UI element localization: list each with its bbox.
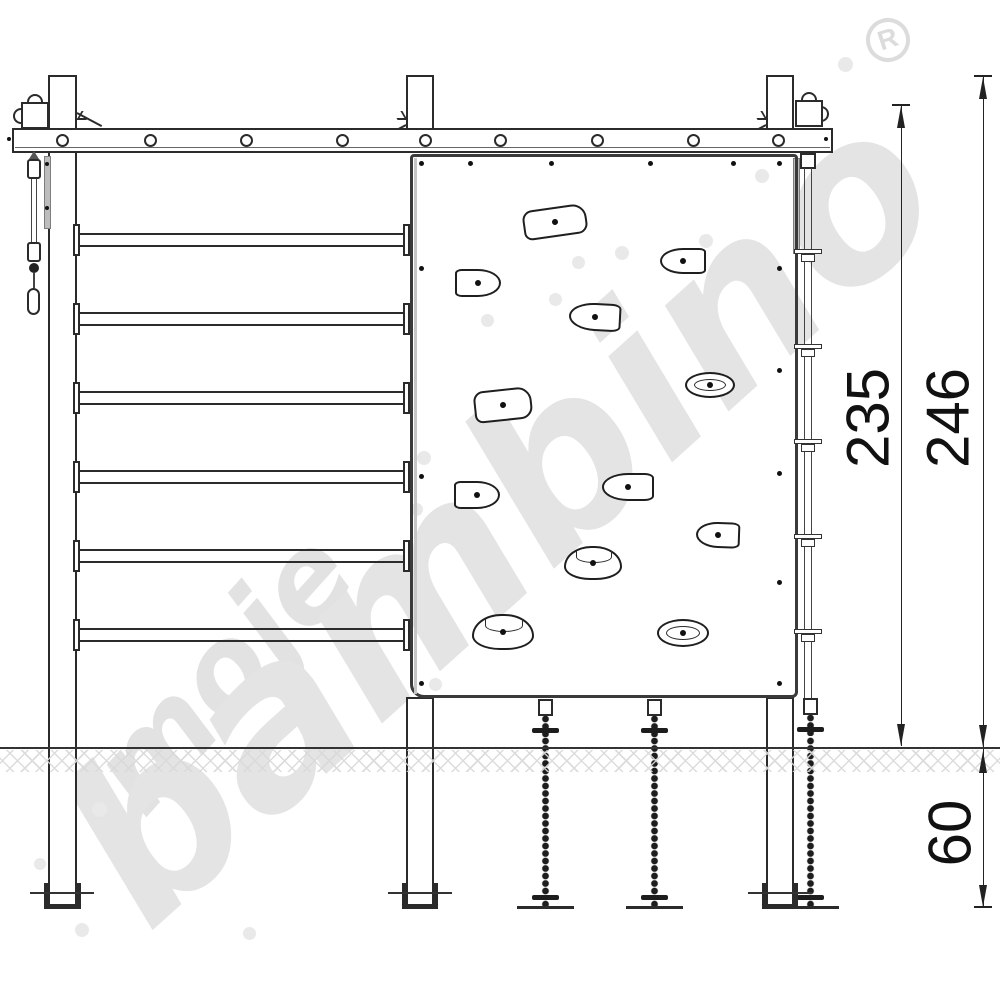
grip-link [33,273,35,288]
hold-bolt [625,484,631,490]
anchor-chain [806,714,815,736]
grip-handle [27,288,40,315]
chain-top-connector [647,699,662,716]
beam-hole [144,134,157,147]
footing-pin [30,892,94,894]
chain-anchor-base [517,906,574,909]
rung-plate [403,461,410,493]
chain-shackle-pin [797,727,824,732]
hold-bolt [500,629,506,635]
ladder-rung [80,312,404,326]
rope-disc-collar [801,634,815,642]
hold-bolt [590,560,596,566]
grip-ball-icon [29,263,39,273]
hold-bolt [592,314,598,320]
grip-mid-ferrule [27,242,41,262]
rung-plate [403,303,410,335]
mounting-batten-left [44,156,51,229]
climbing-hold [455,269,501,297]
climbing-hold [602,473,654,501]
beam-rivet [7,137,11,141]
climbing-hold [660,248,706,274]
hold-bolt [552,219,559,226]
batten-screw [45,206,49,210]
rung-plate [403,619,410,651]
speckle [75,923,89,937]
chain-top-connector [803,698,818,715]
footing-base [402,905,438,909]
dim-60-label: 60 [916,800,985,867]
rung-plate [73,540,80,572]
climbing-hold [657,619,709,647]
climbing-wall-panel [410,154,798,698]
beam-inner-edge [15,147,830,148]
speckle [243,927,256,940]
footing-pin [388,892,452,894]
rope-disc-collar [801,539,815,547]
beam-hole [687,134,700,147]
ladder-rung [80,470,404,484]
chain-shackle-pin [532,728,559,733]
panel-screw [777,580,782,585]
dim-60-arrow-down-icon [979,885,987,907]
panel-screw [468,161,473,166]
dim-246-label: 246 [914,368,983,468]
chain-top-connector [538,699,553,716]
right-post-lower [766,697,794,906]
knotted-rope [804,168,812,698]
grip-rope [31,179,37,242]
anchor-chain [650,715,659,737]
panel-screw [777,161,782,166]
rung-plate [73,224,80,256]
panel-screw [777,368,782,373]
dim-235-label: 235 [834,368,903,468]
batten-screw [45,162,49,166]
ground-line [0,747,1000,749]
panel-screw [648,161,653,166]
rope-disc-collar [801,444,815,452]
climbing-hold [454,481,500,509]
grip-hook-icon [29,151,39,159]
dim-246-line [983,76,985,747]
rope-top-connector [800,153,816,169]
anchor-chain [541,715,550,737]
ladder-rung [80,233,404,247]
middle-post-upper [406,75,434,131]
climbing-hold [472,386,533,424]
beam-hole [772,134,785,147]
grip-top-ferrule [27,159,41,179]
beam-rivet [824,137,828,141]
beam-hole [419,134,432,147]
swing-hanger-right-box [795,100,823,127]
ladder-rung [80,549,404,563]
dim-246-arrow-up-icon [979,77,987,99]
hold-bolt [680,258,686,264]
hold-bolt [474,492,480,498]
rung-plate [73,382,80,414]
panel-screw [419,681,424,686]
dim-60-bottom-tick [974,906,992,908]
rung-plate [403,382,410,414]
dim-235-arrow-up-icon [897,106,905,128]
ground-hatch [0,750,1000,772]
panel-screw [419,266,424,271]
dim-235-arrow-down-icon [897,724,905,746]
hold-bolt [715,532,721,538]
panel-screw [549,161,554,166]
swing-hanger-left-box [21,102,49,129]
rope-disc-collar [801,349,815,357]
panel-screw [731,161,736,166]
dim-60-arrow-up-icon [979,751,987,773]
speckle [92,802,107,817]
ladder-rung [80,628,404,642]
panel-left-edge [414,158,417,694]
middle-post-lower [406,697,434,906]
hold-bolt [707,382,713,388]
climbing-hold [685,372,735,398]
rope-disc-collar [801,254,815,262]
hold-bolt [500,402,507,409]
footing-base [44,905,81,909]
panel-screw [419,474,424,479]
hold-bolt [475,280,481,286]
rung-plate [403,224,410,256]
dim-246-arrow-down-icon [979,725,987,747]
climbing-hold [564,546,622,580]
right-post-upper [766,75,794,131]
rung-plate [73,619,80,651]
technical-drawing-playground-climbing-frame: moje bambino R [0,0,1000,1000]
hold-bolt [680,630,686,636]
climbing-hold [472,614,534,650]
footing-pin [748,892,812,894]
beam-hole [240,134,253,147]
chain-shackle-pin [641,728,668,733]
beam-hole [336,134,349,147]
footing-base [762,905,798,909]
panel-screw [419,161,424,166]
rung-plate [73,303,80,335]
ladder-rung [80,391,404,405]
rung-plate [403,540,410,572]
panel-screw [777,681,782,686]
beam-hole [591,134,604,147]
rung-plate [73,461,80,493]
speckle [838,57,853,72]
chain-anchor-base [626,906,683,909]
panel-screw [777,266,782,271]
speckle [34,858,46,870]
beam-hole [494,134,507,147]
beam-hole [56,134,69,147]
panel-screw [777,471,782,476]
registered-trademark-icon: R [860,12,915,67]
